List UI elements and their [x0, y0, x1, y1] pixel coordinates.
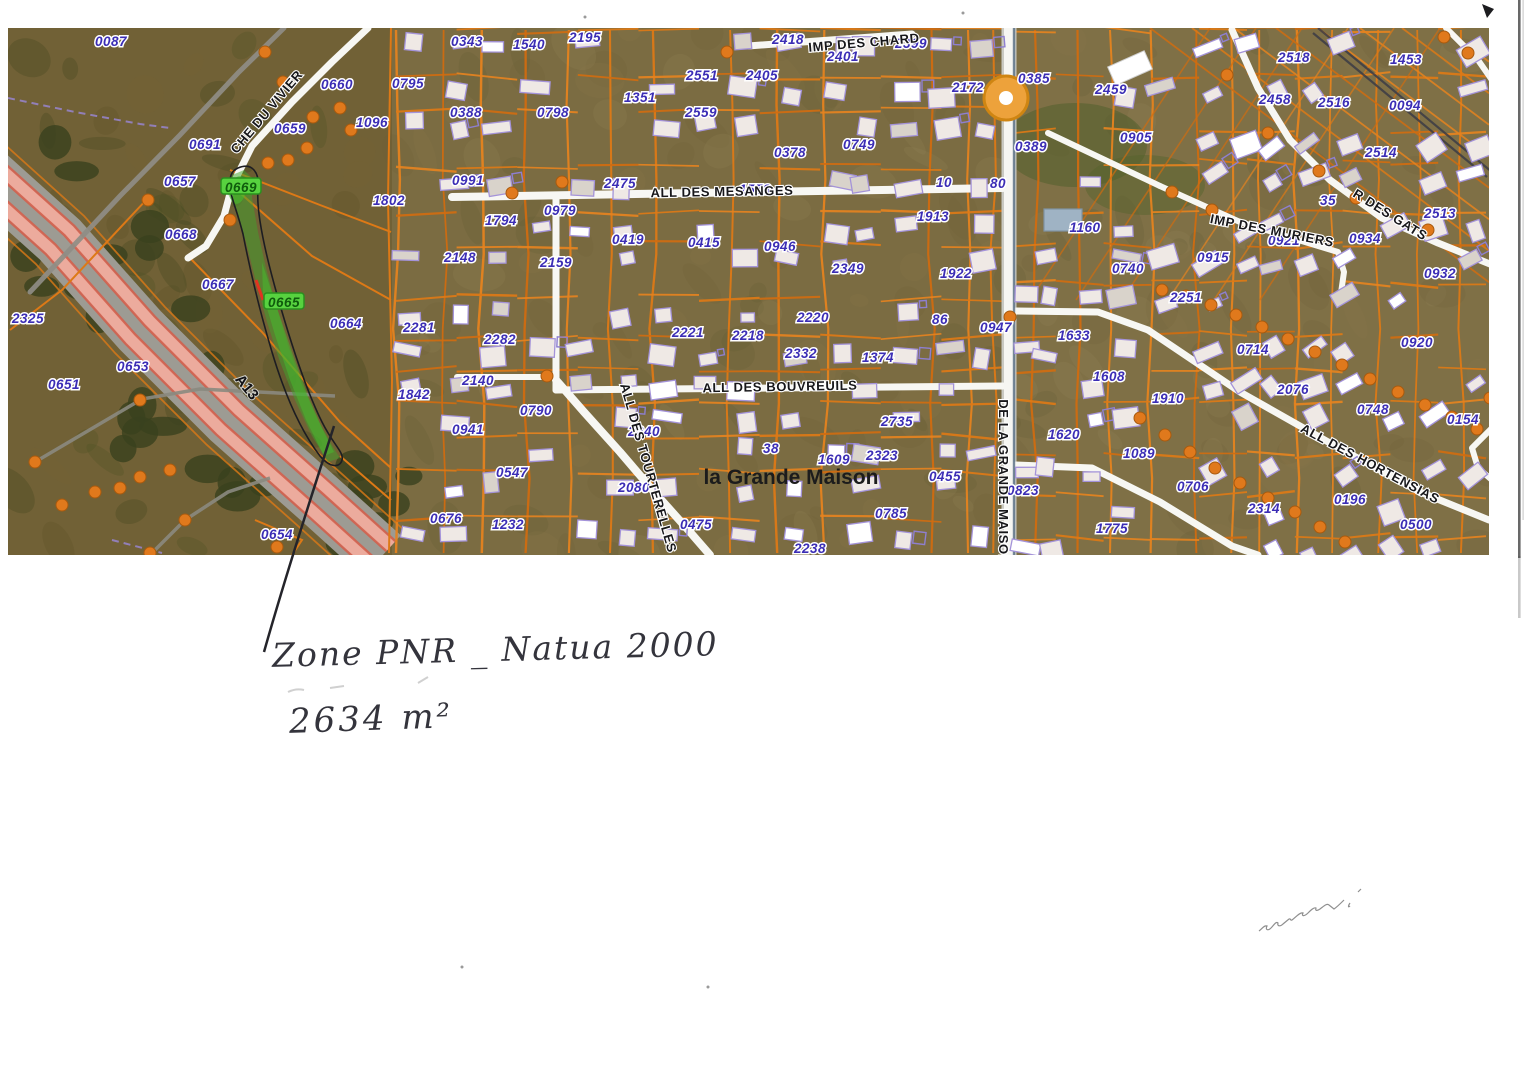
parcel-label: 35 — [1320, 193, 1336, 208]
parcel-label: 0154 — [1447, 412, 1479, 427]
parcel-label: 0920 — [1401, 335, 1433, 350]
parcel-label: 0947 — [980, 320, 1013, 335]
parcel-label: 2418 — [771, 32, 804, 47]
parcel-label: 2458 — [1258, 92, 1291, 107]
parcel-label: 0087 — [95, 34, 128, 49]
parcel-label: 1232 — [492, 517, 524, 532]
parcel-label: 2518 — [1277, 50, 1310, 65]
parcel-label: 2314 — [1247, 501, 1280, 516]
map-layer: 0087066006591096069106570669180206680667… — [0, 11, 1507, 597]
parcel-label: 2735 — [880, 414, 913, 429]
parcel-label: 1620 — [1048, 427, 1080, 442]
parcel-label: 0385 — [1018, 71, 1050, 86]
parcel-label: 0475 — [680, 517, 712, 532]
parcel-label: 2551 — [685, 68, 718, 83]
parcel-label: 1608 — [1093, 369, 1125, 384]
parcel-label: 0668 — [165, 227, 197, 242]
parcel-label: 0665 — [268, 295, 300, 310]
parcel-label: 0991 — [452, 173, 484, 188]
parcel-label: 2459 — [1094, 82, 1127, 97]
parcel-label: 0934 — [1349, 231, 1381, 246]
parcel-label: 0667 — [202, 277, 235, 292]
parcel-label: 0500 — [1400, 517, 1432, 532]
parcel-label: 2251 — [1169, 290, 1202, 305]
parcel-label: 0795 — [392, 76, 424, 91]
parcel-label: 0748 — [1357, 402, 1389, 417]
parcel-label: 0905 — [1120, 130, 1152, 145]
parcel-label: 2405 — [745, 68, 778, 83]
parcel-label: 2238 — [793, 541, 826, 556]
parcel-label: 1453 — [1390, 52, 1422, 67]
parcel-label: 0676 — [430, 511, 462, 526]
parcel-label: 0651 — [48, 377, 80, 392]
parcel-label: 0706 — [1177, 479, 1209, 494]
parcel-label: 2076 — [1276, 382, 1309, 397]
parcel-label: 2282 — [483, 332, 516, 347]
parcel-label: 0653 — [117, 359, 149, 374]
street-label: ALL DES BOUVREUILS — [702, 378, 857, 396]
signature-scribble — [1259, 889, 1361, 931]
parcel-label: 0547 — [496, 465, 529, 480]
parcel-label: 0654 — [261, 527, 293, 542]
parcel-label: 1775 — [1096, 521, 1128, 536]
parcel-label: 0657 — [164, 174, 197, 189]
parcel-label: 0915 — [1197, 250, 1229, 265]
parcel-label: 2325 — [11, 311, 44, 326]
parcel-label: 0455 — [929, 469, 961, 484]
parcel-label: 2475 — [603, 176, 636, 191]
parcel-label: 0388 — [450, 105, 482, 120]
parcel-label: 2221 — [671, 325, 704, 340]
parcel-label: 80 — [990, 176, 1006, 191]
parcel-label: 0415 — [688, 235, 720, 250]
parcel-label: 1351 — [624, 90, 656, 105]
parcel-label: 38 — [763, 441, 779, 456]
parcel-label: 0785 — [875, 506, 907, 521]
parcel-label: 1842 — [398, 387, 430, 402]
parcel-label: 2218 — [731, 328, 764, 343]
parcel-label: 2148 — [443, 250, 476, 265]
parcel-label: 0659 — [274, 121, 306, 136]
parcel-label: 0714 — [1237, 342, 1269, 357]
parcel-label: 2281 — [402, 320, 435, 335]
parcel-label: 0343 — [451, 34, 483, 49]
parcel-label: 0378 — [774, 145, 806, 160]
parcel-label: 2349 — [831, 261, 864, 276]
parcel-label: 0932 — [1424, 266, 1456, 281]
parcel-label: 1922 — [940, 266, 972, 281]
parcel-label: 0669 — [225, 180, 257, 195]
parcel-label: 1802 — [373, 193, 405, 208]
parcel-label: 0790 — [520, 403, 552, 418]
parcel-label: 10 — [936, 175, 952, 190]
parcel-label: 2514 — [1364, 145, 1397, 160]
parcel-label: 1910 — [1152, 391, 1184, 406]
parcel-label: 1096 — [356, 115, 388, 130]
street-label: ALL DES MESANGES — [650, 183, 793, 200]
parcel-label: 2172 — [951, 80, 984, 95]
annotation-area-label: 2634 m² — [288, 696, 454, 742]
map-svg: 0087066006591096069106570669180206680667… — [0, 0, 1528, 1080]
parcel-label: 86 — [932, 312, 948, 327]
parcel-label: 1540 — [513, 37, 545, 52]
parcel-label: 2159 — [539, 255, 572, 270]
parcel-label: 0946 — [764, 239, 796, 254]
parcel-label: 2140 — [461, 373, 494, 388]
parcel-label: 2513 — [1423, 206, 1456, 221]
parcel-label: 0740 — [1112, 261, 1144, 276]
parcel-label: 1609 — [818, 452, 850, 467]
parcel-label: 1633 — [1058, 328, 1090, 343]
parcel-label: 1089 — [1123, 446, 1155, 461]
parcel-label: 2332 — [784, 346, 817, 361]
place-label: la Grande Maison — [703, 466, 878, 489]
parcel-label: 1160 — [1069, 220, 1100, 235]
parcel-label: 2220 — [796, 310, 829, 325]
parcel-label: 0389 — [1015, 139, 1047, 154]
parcel-label: 2516 — [1317, 95, 1350, 110]
parcel-label: 1913 — [917, 209, 949, 224]
parcel-label: 0941 — [452, 422, 484, 437]
parcel-label: 1794 — [485, 213, 517, 228]
parcel-label: 2323 — [865, 448, 898, 463]
scan-edge-line — [1518, 0, 1521, 558]
parcel-label: 0979 — [544, 203, 576, 218]
parcel-label: 0196 — [1334, 492, 1366, 507]
parcel-label: 2559 — [684, 105, 717, 120]
parcel-label: 0798 — [537, 105, 569, 120]
parcel-label: 0660 — [321, 77, 353, 92]
parcel-label: 1374 — [862, 350, 894, 365]
parcel-label: 0691 — [189, 137, 221, 152]
parcel-label: 2195 — [568, 30, 601, 45]
street-label: DE LA GRANDE MAISON — [996, 399, 1011, 564]
parcel-label: 0094 — [1389, 98, 1421, 113]
parcel-label: 0749 — [843, 137, 875, 152]
scanned-document-page: 0087066006591096069106570669180206680667… — [0, 0, 1528, 1080]
parcel-label: 0664 — [330, 316, 362, 331]
parcel-label: 0419 — [612, 232, 644, 247]
